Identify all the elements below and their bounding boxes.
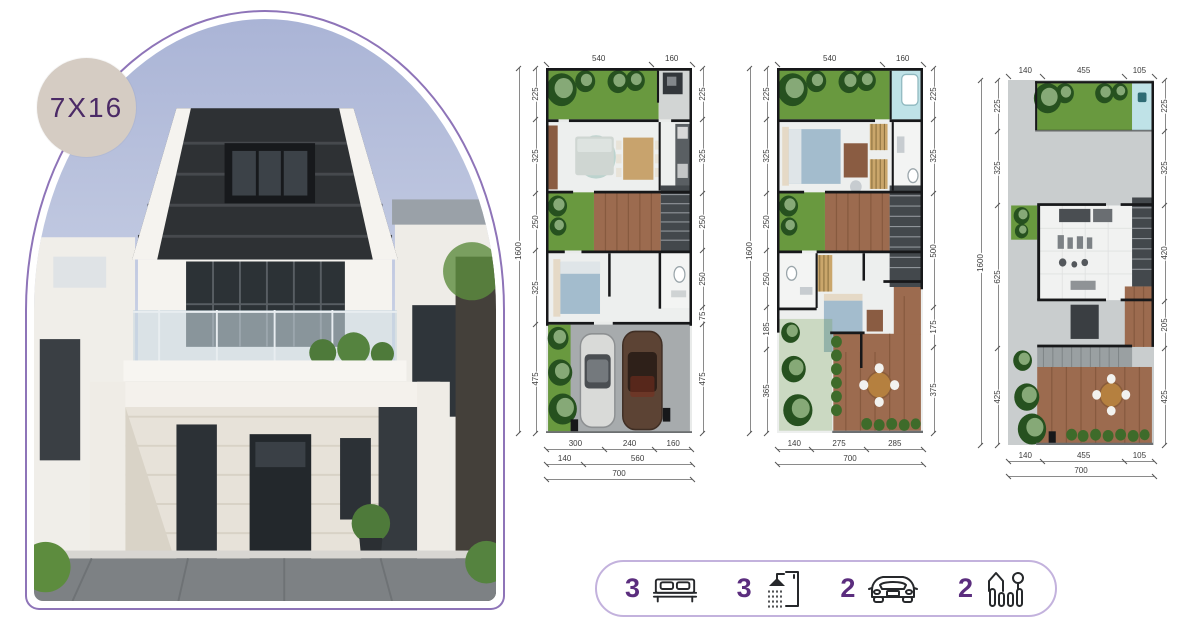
dimension-segment: 185	[756, 308, 777, 350]
dimension-label: 420	[1161, 246, 1169, 261]
dimension-segment: 225	[923, 68, 944, 119]
garden-icon	[985, 569, 1027, 609]
dimension-segment: 1600	[743, 68, 756, 433]
dimension-label: 625	[994, 269, 1002, 284]
dimension-segment: 560	[583, 453, 692, 468]
car-icon	[867, 573, 919, 605]
dimension-segment: 455	[1043, 450, 1125, 465]
dimension-bottom-row: 140455105	[1008, 450, 1154, 465]
floor-plan-roof: 140455105 1600 225325625425	[974, 64, 1175, 483]
dimension-right-column: 225325500175375	[923, 68, 944, 433]
garden-count: 2	[958, 575, 973, 602]
dimension-segment: 540	[777, 52, 882, 68]
bed-icon	[652, 572, 698, 606]
dimension-label: 140	[558, 455, 571, 463]
dimension-segment: 325	[756, 119, 777, 193]
dimension-segment: 225	[692, 68, 713, 119]
dimension-label: 250	[763, 271, 771, 286]
dimension-label: 250	[763, 214, 771, 229]
dimension-segment: 700	[777, 453, 923, 468]
dimension-label: 375	[930, 383, 938, 398]
dimension-segment: 205	[1154, 301, 1175, 348]
dimension-label: 160	[896, 55, 909, 63]
plan-svg-second	[777, 68, 923, 433]
dimension-segment: 325	[923, 119, 944, 193]
dimension-segment: 540	[546, 52, 651, 68]
dimension-bottom-row: 700	[777, 453, 923, 468]
dimension-segment: 500	[923, 193, 944, 307]
plan-body-ground	[546, 68, 692, 433]
dimension-label: 160	[667, 440, 680, 448]
dimension-segment: 475	[692, 325, 713, 433]
dimension-segment: 425	[987, 348, 1008, 445]
dimension-overall-column: 1600	[512, 68, 525, 433]
feature-item-bedrooms: 3	[625, 572, 698, 606]
dimension-bottom-row: 300240160	[546, 438, 692, 453]
dimension-label: 1600	[977, 253, 985, 273]
dimension-segment: 250	[692, 193, 713, 250]
dimension-label: 425	[994, 389, 1002, 404]
dimension-label: 225	[1161, 98, 1169, 113]
dimension-segment: 455	[1043, 64, 1125, 80]
dimension-label: 560	[631, 455, 644, 463]
dimension-segment: 325	[987, 131, 1008, 205]
dimension-left-column: 225325250250185365	[756, 68, 777, 433]
dimension-label: 425	[1161, 389, 1169, 404]
dimension-label: 105	[1133, 67, 1146, 75]
dimension-label: 175	[930, 320, 938, 335]
dimension-label: 325	[699, 149, 707, 164]
dimension-label: 365	[763, 384, 771, 399]
dimension-segment: 700	[1008, 465, 1154, 480]
size-badge: 7X16	[37, 58, 136, 157]
dimension-segment: 140	[1008, 64, 1043, 80]
dimension-segment: 240	[605, 438, 655, 453]
dimension-bottom-rows: 300240160140560700	[546, 433, 692, 483]
dimension-label: 540	[592, 55, 605, 63]
dimension-label: 185	[763, 321, 771, 336]
dimension-segment: 250	[756, 251, 777, 308]
plan-svg-roof	[1008, 80, 1154, 445]
dimension-label: 475	[699, 371, 707, 386]
dimension-label: 325	[532, 280, 540, 295]
dimension-right-column: 225325420205425	[1154, 80, 1175, 445]
dimension-segment: 225	[987, 80, 1008, 131]
dimension-label: 500	[930, 243, 938, 258]
dimension-label: 1600	[515, 241, 523, 261]
dimension-segment: 325	[692, 119, 713, 193]
dimension-segment: 420	[1154, 205, 1175, 301]
floor-plans-row: 540160 1600 225325250325475	[512, 52, 1175, 483]
dimension-overall-column: 1600	[974, 80, 987, 445]
dimension-label: 105	[1133, 452, 1146, 460]
dimension-label: 225	[930, 86, 938, 101]
dimension-segment: 250	[692, 251, 713, 308]
dimension-label: 75	[699, 311, 707, 322]
dimension-segment: 140	[777, 438, 812, 453]
dimension-label: 325	[532, 149, 540, 164]
dimension-segment: 1600	[974, 80, 987, 445]
dimension-segment: 375	[923, 347, 944, 433]
dimension-label: 140	[1019, 452, 1032, 460]
dimension-segment: 160	[651, 52, 692, 68]
dimension-segment: 625	[987, 205, 1008, 348]
dimension-bottom-rows: 140275285700	[777, 433, 923, 483]
dimension-label: 700	[612, 470, 625, 478]
dimension-bottom-row: 140560	[546, 453, 692, 468]
house-photo-card: 7X16	[25, 10, 505, 610]
dimension-segment: 140	[1008, 450, 1043, 465]
dimension-segment: 105	[1125, 64, 1154, 80]
dimension-segment: 250	[525, 193, 546, 250]
dimension-segment: 325	[1154, 131, 1175, 205]
dimension-segment: 475	[525, 325, 546, 433]
dimension-label: 700	[1074, 467, 1087, 475]
dimension-label: 250	[699, 271, 707, 286]
dimension-label: 140	[788, 440, 801, 448]
dimension-segment: 160	[882, 52, 923, 68]
dimension-label: 325	[763, 149, 771, 164]
dimension-label: 1600	[746, 241, 754, 261]
dimension-label: 250	[532, 214, 540, 229]
dimension-right-column: 22532525025075475	[692, 68, 713, 433]
dimension-segment: 285	[867, 438, 923, 453]
dimension-label: 325	[994, 161, 1002, 176]
dimension-label: 250	[699, 214, 707, 229]
dimension-top-row: 140455105	[1008, 64, 1154, 80]
dimension-segment: 140	[546, 453, 583, 468]
dimension-label: 540	[823, 55, 836, 63]
dimension-label: 205	[1161, 317, 1169, 332]
dimension-label: 240	[623, 440, 636, 448]
dimension-label: 455	[1077, 67, 1090, 75]
dimension-label: 285	[888, 440, 901, 448]
dimension-segment: 225	[1154, 80, 1175, 131]
dimension-label: 300	[569, 440, 582, 448]
dimension-label: 160	[665, 55, 678, 63]
dimension-segment: 225	[525, 68, 546, 119]
dimension-label: 275	[832, 440, 845, 448]
dimension-label: 225	[699, 86, 707, 101]
dimension-segment: 225	[756, 68, 777, 119]
dimension-segment: 105	[1125, 450, 1154, 465]
plan-body-roof	[1008, 80, 1154, 445]
dimension-bottom-rows: 140455105700	[1008, 445, 1154, 483]
dimension-segment: 325	[525, 251, 546, 325]
dimension-left-column: 225325250325475	[525, 68, 546, 433]
page: 7X16 540160 1600 225325250325475	[0, 0, 1200, 633]
dimension-segment: 425	[1154, 348, 1175, 445]
dimension-segment: 365	[756, 350, 777, 433]
dimension-label: 455	[1077, 452, 1090, 460]
floor-plan-second: 540160 1600 225325250250185365	[743, 52, 944, 483]
dimension-segment: 1600	[512, 68, 525, 433]
dimension-left-column: 225325625425	[987, 80, 1008, 445]
dimension-segment: 175	[923, 308, 944, 348]
feature-bar: 3 3	[595, 560, 1057, 617]
dimension-label: 700	[843, 455, 856, 463]
dimension-label: 225	[763, 86, 771, 101]
dimension-segment: 325	[525, 119, 546, 193]
size-badge-label: 7X16	[50, 92, 123, 124]
bedroom-count: 3	[625, 575, 640, 602]
dimension-label: 140	[1019, 67, 1032, 75]
dimension-bottom-row: 700	[546, 468, 692, 483]
dimension-label: 225	[994, 98, 1002, 113]
dimension-segment: 250	[756, 193, 777, 250]
feature-item-garden: 2	[958, 569, 1027, 609]
dimension-label: 475	[532, 371, 540, 386]
dimension-label: 325	[930, 149, 938, 164]
dimension-bottom-row: 700	[1008, 465, 1154, 480]
feature-item-bathrooms: 3	[737, 569, 802, 609]
dimension-segment: 700	[546, 468, 692, 483]
dimension-top-row: 540160	[777, 52, 923, 68]
plan-body-second	[777, 68, 923, 433]
dimension-label: 225	[532, 86, 540, 101]
dimension-segment: 160	[654, 438, 692, 453]
carport-count: 2	[840, 575, 855, 602]
bathroom-count: 3	[737, 575, 752, 602]
shower-icon	[764, 569, 802, 609]
feature-item-carport: 2	[840, 573, 919, 605]
dimension-top-row: 540160	[546, 52, 692, 68]
dimension-segment: 300	[546, 438, 605, 453]
plan-svg-ground	[546, 68, 692, 433]
floor-plan-ground: 540160 1600 225325250325475	[512, 52, 713, 483]
dimension-overall-column: 1600	[743, 68, 756, 433]
dimension-label: 325	[1161, 161, 1169, 176]
dimension-bottom-row: 140275285	[777, 438, 923, 453]
dimension-segment: 275	[812, 438, 867, 453]
